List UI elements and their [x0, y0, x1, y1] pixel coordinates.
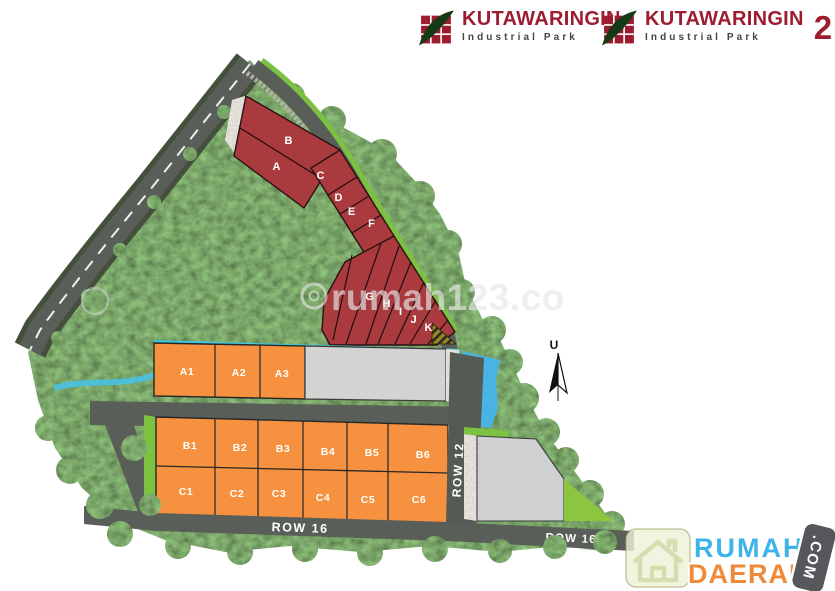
siteplan-map: A B C D E F G H I J K: [0, 0, 835, 591]
lot-label-b4: B4: [321, 446, 335, 458]
red-lot-label-f: F: [368, 218, 376, 230]
compass-north-label: U: [550, 338, 559, 352]
rumah-daerah-logo: RUMAH DAERAH .COM: [626, 521, 835, 591]
siteplan-page: KUTAWARINGIN Industrial Park KUTAWARINGI…: [0, 0, 835, 591]
lot-label-c3: C3: [272, 488, 286, 500]
red-lot-label-d: D: [335, 192, 344, 204]
red-lot-label-e: E: [348, 206, 356, 218]
lot-label-a3: A3: [275, 368, 289, 380]
row-a-block: A1 A2 A3: [154, 343, 459, 402]
dotcom-badge: .COM: [789, 521, 835, 591]
lot-label-c4: C4: [316, 492, 330, 504]
lot-label-b2: B2: [233, 442, 247, 454]
row12-label: ROW 12: [450, 442, 467, 498]
lot-label-b3: B3: [276, 443, 290, 455]
north-arrow-icon: U: [549, 338, 567, 401]
lot-label-c6: C6: [412, 494, 426, 506]
lot-label-b1: B1: [183, 440, 197, 452]
red-lot-label-a: A: [273, 161, 282, 173]
lot-label-b6: B6: [416, 449, 430, 461]
gravel-strip: [464, 434, 477, 521]
watermark-text: rumah123.co: [331, 277, 565, 318]
lot-label-a2: A2: [232, 367, 246, 379]
red-lot-label-b: B: [285, 135, 294, 147]
lot-label-c1: C1: [179, 486, 193, 498]
row16-label-left: ROW 16: [271, 520, 328, 536]
row-bc-block: B1 B2 B3 B4 B5 B6 C1 C2 C3 C4 C5 C6: [144, 415, 461, 526]
red-lot-label-k: K: [425, 322, 434, 334]
lot-label-c2: C2: [230, 488, 244, 500]
lot-label-a1: A1: [180, 366, 194, 378]
red-lot-label-c: C: [317, 170, 326, 182]
lot-label-b5: B5: [365, 447, 379, 459]
gray-lot-row-a: [305, 346, 446, 401]
lot-label-c5: C5: [361, 494, 375, 506]
